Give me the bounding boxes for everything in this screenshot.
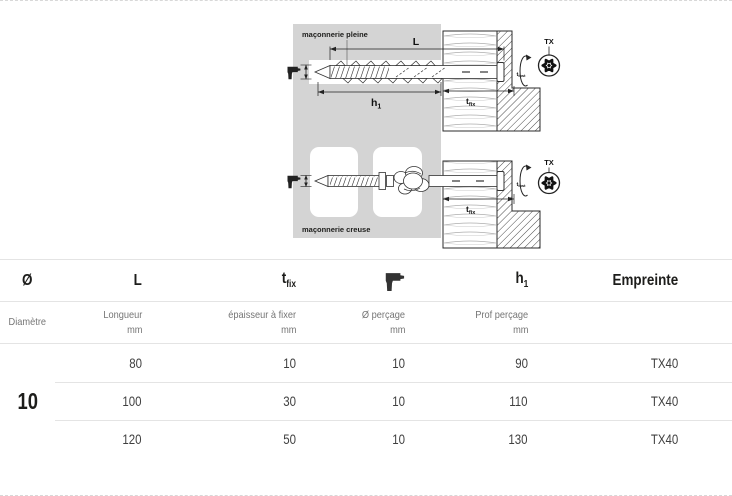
diameter-cell: 10 xyxy=(0,344,55,458)
col-header-h1: h1 xyxy=(407,260,530,301)
wall-section xyxy=(443,161,540,248)
subheader-drill: Ø perçagemm xyxy=(298,302,407,343)
cell-tfix: 50 xyxy=(144,421,298,458)
subheader-h1: Prof perçagemm xyxy=(407,302,530,343)
col-header-empreinte: Empreinte xyxy=(530,260,680,301)
table-body: 10 80 10 10 90 TX40 100 30 10 110 TX40 xyxy=(0,344,732,458)
subheader-diameter: Diamètre xyxy=(0,302,55,343)
torx-icon: TX xyxy=(539,158,560,194)
rotation-arrow-icon: tinst xyxy=(517,55,532,87)
table-row: 100 30 10 110 TX40 xyxy=(55,382,732,420)
installation-diagram: maçonnerie pleine maçonnerie creuse xyxy=(0,1,732,259)
svg-text:tinst: tinst xyxy=(517,72,527,78)
col-header-length: L xyxy=(55,260,144,301)
rotation-arrow-icon: tinst xyxy=(517,165,532,197)
dimension-table: Ø L tfix h1 Empreinte Diamètre Longueurm… xyxy=(0,259,732,458)
col-header-diameter: Ø xyxy=(0,260,55,301)
cell-length: 120 xyxy=(55,421,144,458)
cell-drive: TX40 xyxy=(530,421,680,458)
svg-text:TX: TX xyxy=(544,158,554,167)
cell-drill: 10 xyxy=(298,344,407,382)
cell-length: 80 xyxy=(55,344,144,382)
solid-masonry-label: maçonnerie pleine xyxy=(302,30,368,39)
cell-drive: TX40 xyxy=(530,344,680,382)
col-header-drill xyxy=(298,260,407,301)
cell-tfix: 10 xyxy=(144,344,298,382)
subheader-tfix: épaisseur à fixermm xyxy=(144,302,298,343)
cell-drive: TX40 xyxy=(530,383,680,420)
cell-depth: 90 xyxy=(407,344,530,382)
svg-text:TX: TX xyxy=(544,37,554,46)
cell-depth: 110 xyxy=(407,383,530,420)
cell-drill: 10 xyxy=(298,421,407,458)
table-row: 120 50 10 130 TX40 xyxy=(55,420,732,458)
cell-tfix: 30 xyxy=(144,383,298,420)
cell-depth: 130 xyxy=(407,421,530,458)
table-subheader-row: Diamètre Longueurmm épaisseur à fixermm … xyxy=(0,302,732,344)
wall-section xyxy=(443,31,540,131)
table-header-row: Ø L tfix h1 Empreinte xyxy=(0,260,732,302)
cell-drill: 10 xyxy=(298,383,407,420)
cell-length: 100 xyxy=(55,383,144,420)
col-header-tfix: tfix xyxy=(144,260,298,301)
subheader-empreinte xyxy=(530,302,680,343)
drill-icon xyxy=(385,270,405,292)
svg-text:L: L xyxy=(413,36,420,48)
product-spec-page: maçonnerie pleine maçonnerie creuse xyxy=(0,0,732,496)
table-row: 80 10 10 90 TX40 xyxy=(55,344,732,382)
svg-text:tinst: tinst xyxy=(517,182,527,188)
subheader-length: Longueurmm xyxy=(55,302,144,343)
hollow-masonry-label: maçonnerie creuse xyxy=(302,225,370,234)
torx-icon: TX xyxy=(539,37,560,76)
